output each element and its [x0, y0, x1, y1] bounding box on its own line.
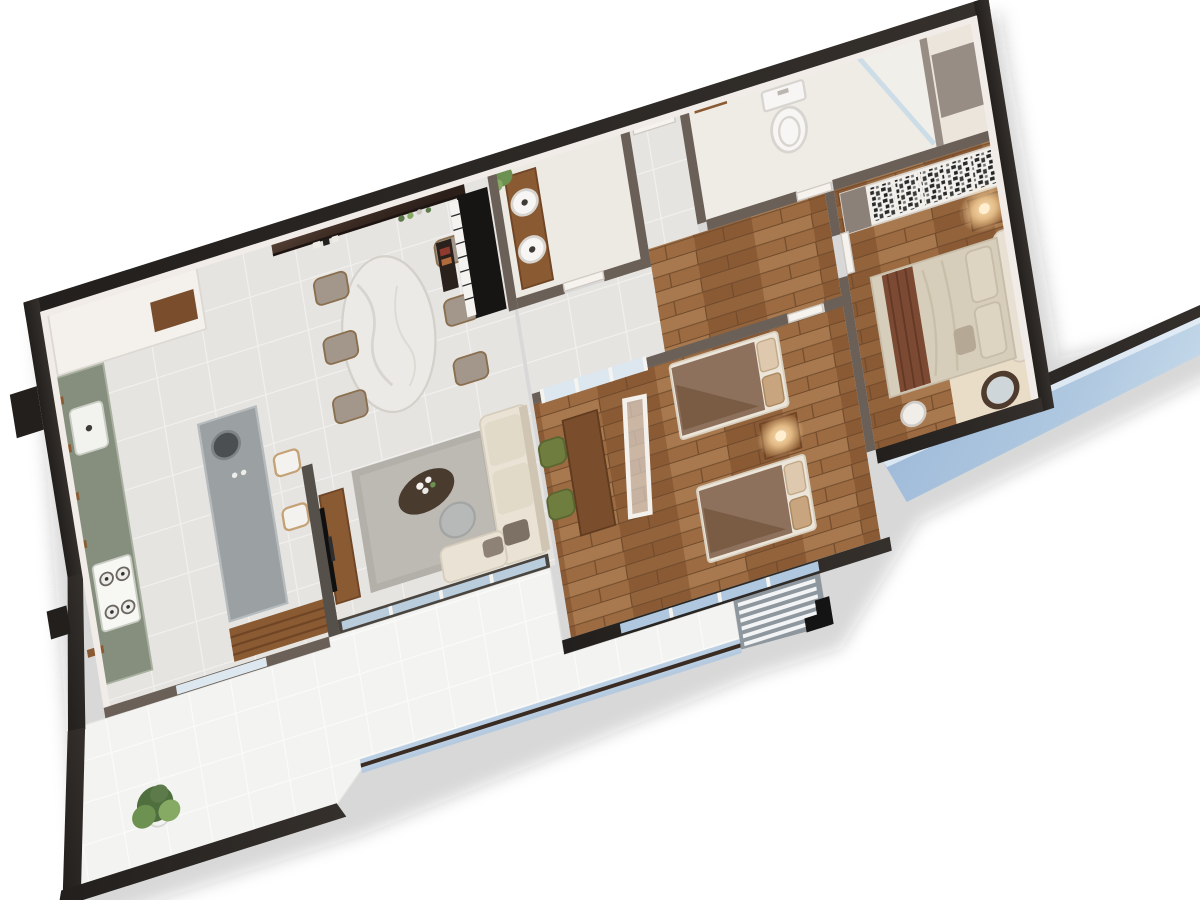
floorplan-render — [0, 0, 1200, 900]
standing-mirror-frame — [624, 396, 650, 517]
floorplan-svg — [0, 0, 1200, 900]
